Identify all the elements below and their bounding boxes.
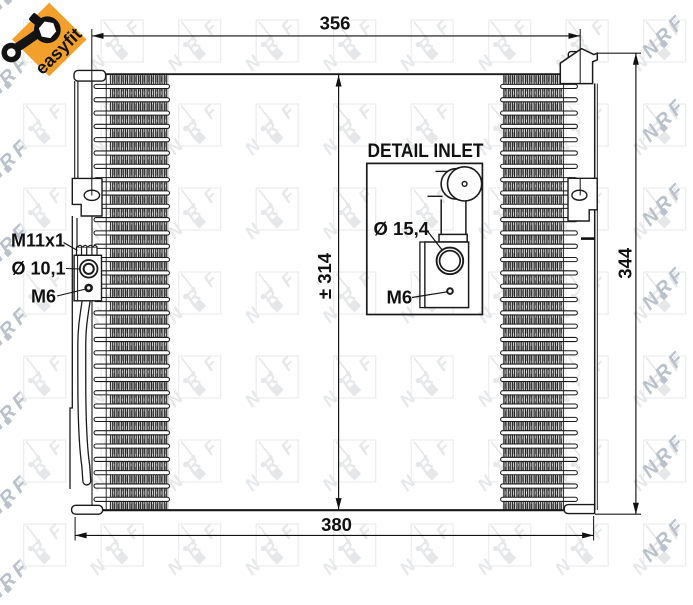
svg-text:± 314: ± 314 <box>314 252 335 299</box>
svg-text:M6: M6 <box>31 287 56 307</box>
svg-text:M11x1: M11x1 <box>11 231 65 251</box>
svg-text:DETAIL INLET: DETAIL INLET <box>368 141 484 162</box>
svg-text:Ø 15,4: Ø 15,4 <box>374 218 430 239</box>
svg-text:344: 344 <box>615 247 636 279</box>
svg-text:Ø 10,1: Ø 10,1 <box>12 259 66 279</box>
svg-text:M6: M6 <box>387 287 413 308</box>
svg-text:356: 356 <box>320 13 351 34</box>
svg-text:380: 380 <box>321 514 352 535</box>
